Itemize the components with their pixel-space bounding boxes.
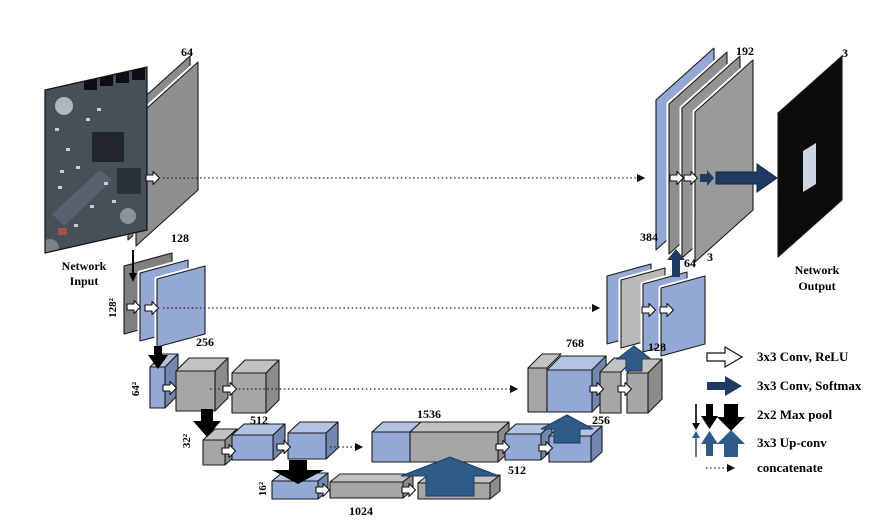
- input-caption-line2: Input: [70, 274, 99, 288]
- input-caption-line1: Network: [62, 259, 107, 273]
- upconv1-channels-label: 64: [684, 256, 696, 270]
- pcb-chip: [92, 132, 124, 162]
- pcb-chip: [117, 168, 141, 194]
- box-face: [272, 481, 318, 499]
- output-channels-label: 3: [842, 46, 848, 60]
- legend-conv-relu-label: 3x3 Conv, ReLU: [757, 349, 849, 364]
- legend: 3x3 Conv, ReLU 3x3 Conv, Softmax 2x2 Max…: [692, 347, 862, 475]
- box-face: [176, 371, 215, 411]
- pcb-component: [55, 97, 73, 115]
- box-face: [547, 370, 592, 412]
- legend-maxpool-large-icon: [717, 404, 745, 431]
- enc1-channels-label: 64: [181, 45, 193, 59]
- unet-architecture-figure: 64 128 256 512 1024 1536 512 256 768 128…: [0, 0, 888, 529]
- legend-upconv-label: 3x3 Up-conv: [757, 435, 827, 450]
- legend-maxpool-thin-head: [692, 423, 700, 430]
- box-top: [330, 474, 413, 482]
- resolution-label-16: 16²: [257, 481, 269, 496]
- box-face: [528, 368, 547, 412]
- pcb-component: [41, 239, 59, 257]
- legend-maxpool-small-icon: [701, 404, 718, 429]
- legend-maxpool-label: 2x2 Max pool: [757, 407, 833, 422]
- upconv2-channels-label: 128: [648, 340, 666, 354]
- enc4-channels-label: 512: [250, 413, 268, 427]
- dec4-channels-label: 1536: [417, 407, 441, 421]
- legend-conv-softmax-label: 3x3 Conv, Softmax: [757, 378, 862, 393]
- output-caption-line1: Network: [795, 263, 840, 277]
- box-face: [372, 432, 410, 462]
- box-face: [232, 435, 273, 460]
- box-face: [410, 432, 498, 462]
- encoder-block-128: [124, 253, 205, 347]
- resolution-label-128: 128²: [107, 297, 119, 318]
- pcb-component: [100, 72, 113, 86]
- legend-conv-softmax-icon: [707, 376, 742, 396]
- enc3-channels-label: 256: [196, 335, 214, 349]
- dec2-channels-label: 384: [640, 230, 658, 244]
- legend-upconv-thin-head: [692, 431, 700, 438]
- box-face: [627, 373, 648, 413]
- pcb-component: [120, 208, 136, 224]
- resolution-label-64: 64²: [130, 381, 142, 396]
- dec3-channels-label: 768: [566, 336, 584, 350]
- box-face: [288, 433, 326, 459]
- legend-concatenate-label: concatenate: [757, 460, 823, 475]
- enc2-channels-label: 128: [171, 231, 189, 245]
- legend-conv-relu-icon: [707, 347, 742, 367]
- output-caption-line2: Output: [798, 279, 835, 293]
- resolution-label-32: 32²: [181, 433, 193, 448]
- encoder-block-256: [150, 354, 279, 413]
- preout-channels-label: 3: [707, 250, 713, 264]
- legend-upconv-large-icon: [717, 430, 745, 457]
- pcb-component: [58, 228, 67, 235]
- box-face: [505, 434, 541, 460]
- network-input-image: [40, 60, 152, 260]
- decoder-block-192: [656, 48, 753, 262]
- bottleneck-channels-label: 1024: [349, 504, 373, 518]
- upconv3-channels-label: 256: [592, 413, 610, 427]
- defect-region: [803, 143, 816, 192]
- box-top: [410, 422, 509, 432]
- box-face: [330, 482, 403, 498]
- dec1-channels-label: 192: [736, 44, 754, 58]
- network-output-image: [778, 56, 842, 257]
- legend-upconv-small-icon: [701, 431, 718, 456]
- unet-diagram-canvas: 64 128 256 512 1024 1536 512 256 768 128…: [0, 0, 888, 529]
- box-face: [232, 373, 266, 413]
- encoder-block-512: [203, 422, 338, 465]
- dec4-conv-channels-label: 512: [508, 463, 526, 477]
